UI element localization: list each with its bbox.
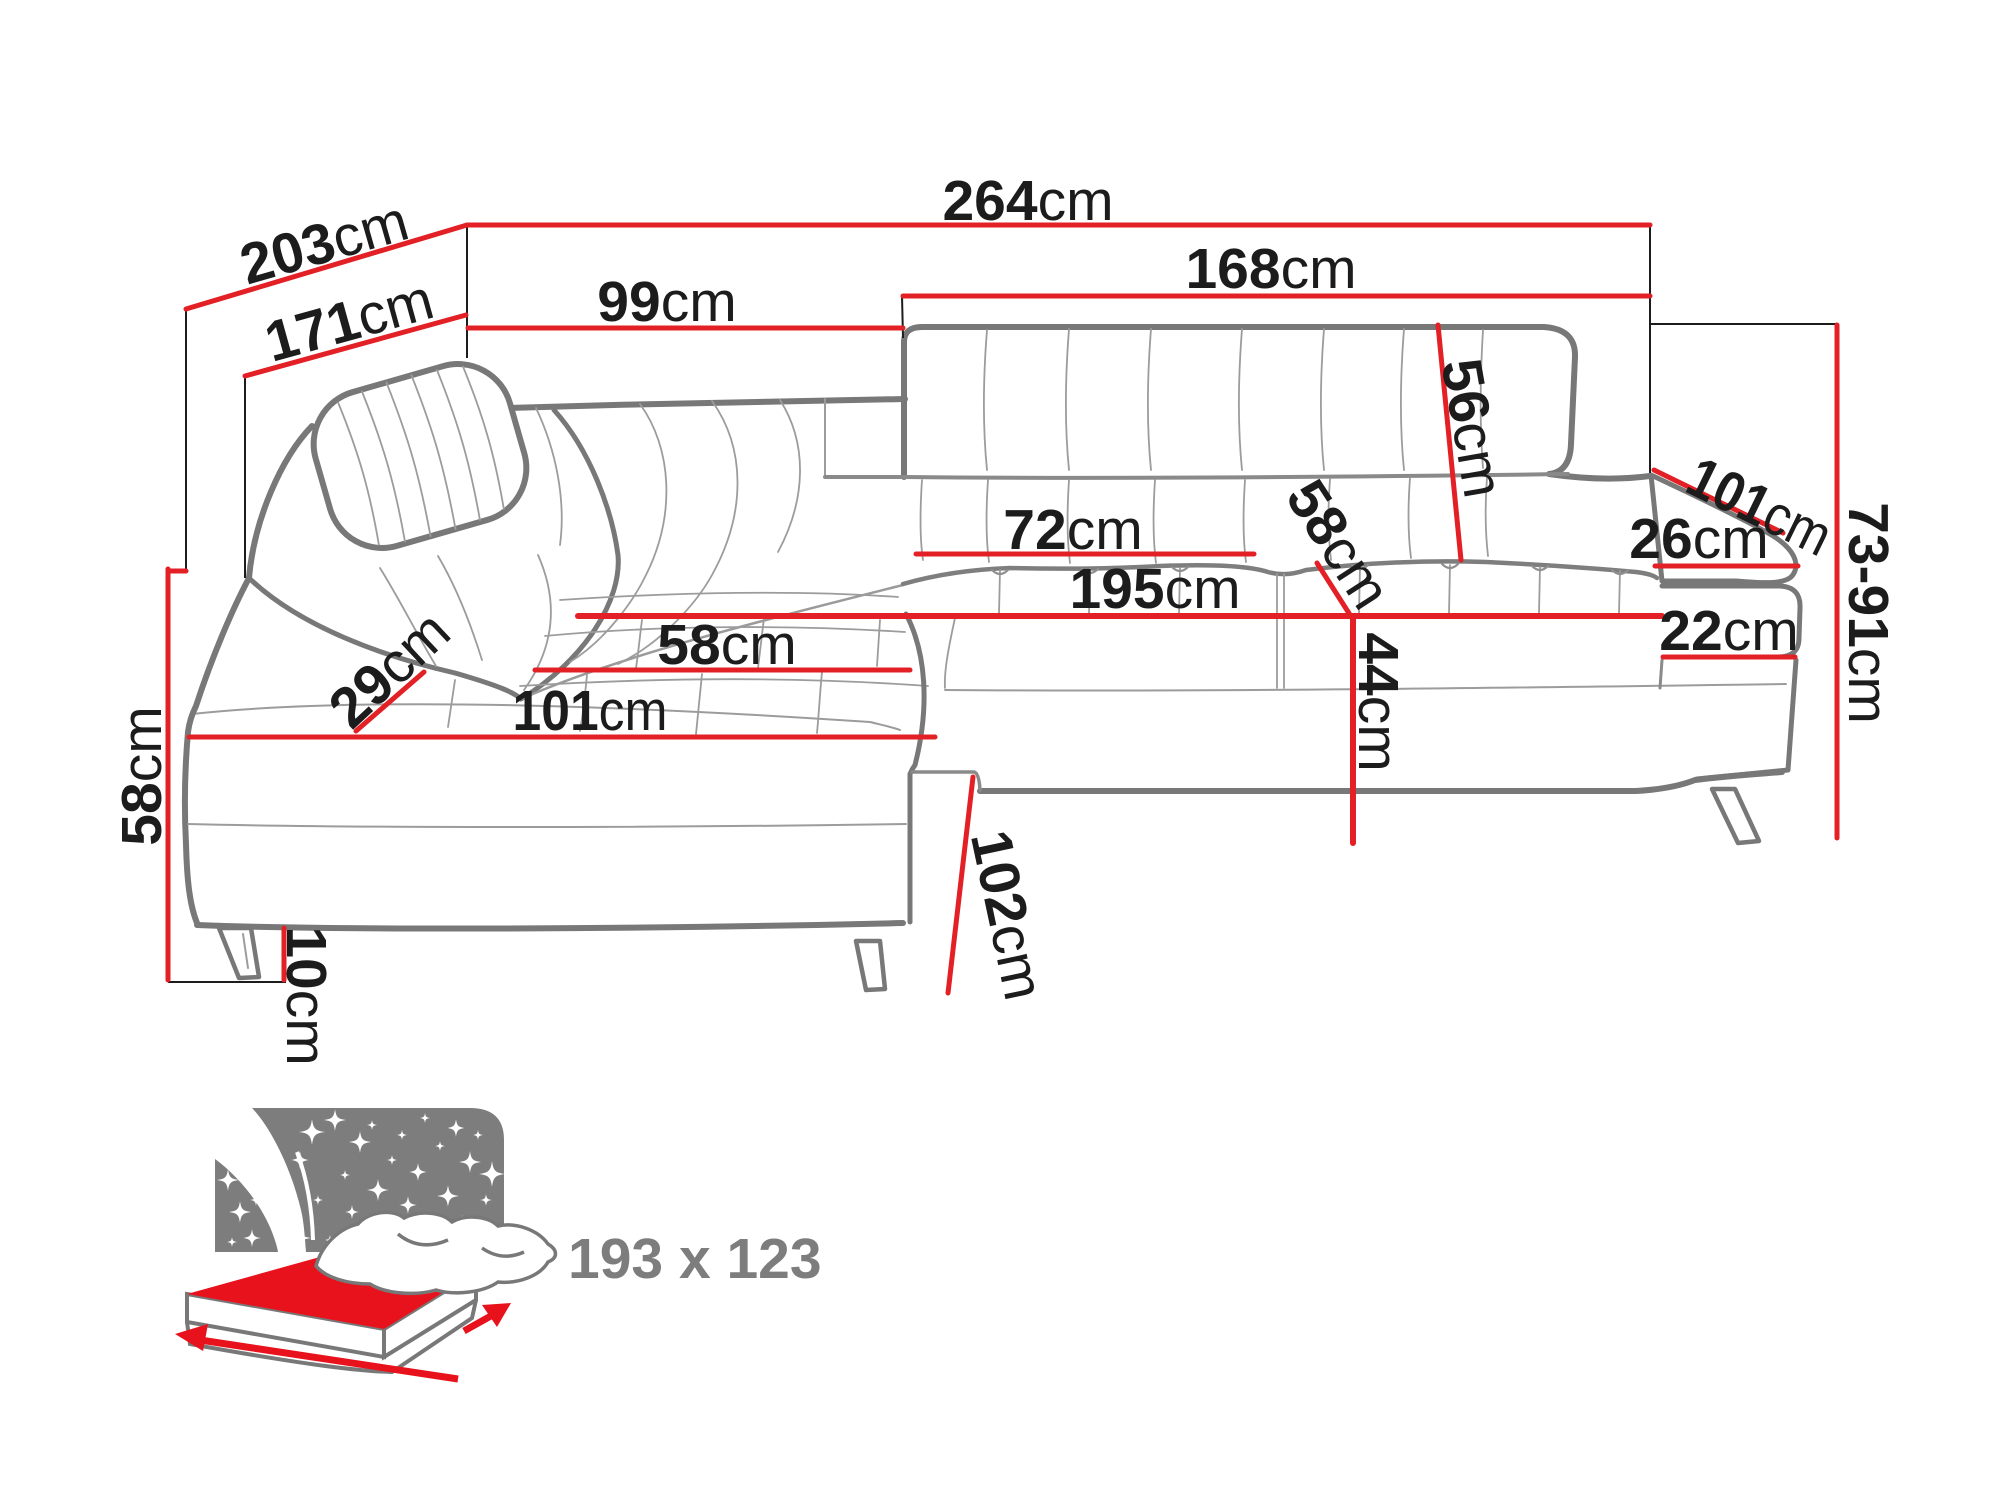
svg-text:195cm: 195cm (1069, 557, 1240, 621)
svg-text:193 x 123: 193 x 123 (568, 1227, 822, 1291)
svg-text:72cm: 72cm (1003, 498, 1142, 562)
svg-text:26cm: 26cm (1629, 507, 1768, 571)
svg-text:168cm: 168cm (1185, 237, 1356, 301)
svg-text:22cm: 22cm (1659, 599, 1798, 663)
svg-text:73-91cm: 73-91cm (1836, 502, 1900, 724)
svg-text:99cm: 99cm (597, 270, 736, 334)
svg-text:58cm: 58cm (110, 706, 174, 845)
svg-text:44cm: 44cm (1346, 632, 1410, 771)
svg-text:10cm: 10cm (274, 926, 338, 1065)
svg-text:58cm: 58cm (657, 613, 796, 677)
svg-text:264cm: 264cm (942, 169, 1113, 233)
svg-text:101cm: 101cm (513, 679, 668, 743)
